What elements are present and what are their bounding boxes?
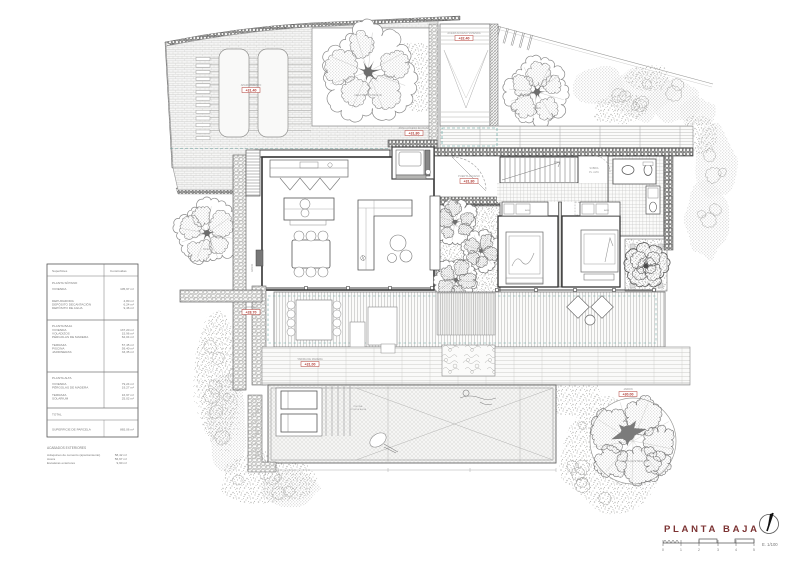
svg-text:+31.80: +31.80	[463, 180, 474, 184]
svg-text:SUPERFICIE DE PARCELA: SUPERFICIE DE PARCELA	[52, 428, 92, 432]
svg-text:TARIMA DE MADERA: TARIMA DE MADERA	[297, 357, 323, 361]
svg-text:62,04 m²: 62,04 m²	[122, 335, 134, 339]
svg-text:Superficies: Superficies	[52, 269, 68, 273]
svg-text:9,46 m²: 9,46 m²	[124, 306, 135, 310]
svg-text:PUERTA ACCESO: PUERTA ACCESO	[458, 174, 480, 178]
svg-text:ARM: ARM	[525, 209, 530, 212]
svg-text:OLEA: OLEA	[533, 106, 541, 110]
svg-text:19,27 m²: 19,27 m²	[122, 386, 134, 390]
svg-text:+30.00: +30.00	[622, 393, 633, 397]
svg-text:SUBIDA: SUBIDA	[590, 167, 599, 170]
svg-text:5: 5	[753, 548, 755, 552]
svg-text:PLANTA SÓTANO: PLANTA SÓTANO	[52, 280, 78, 285]
svg-text:Escaleras exteriores: Escaleras exteriores	[47, 461, 75, 465]
svg-text:0: 0	[662, 548, 664, 552]
svg-text:+31.40: +31.40	[245, 89, 256, 93]
svg-text:9,90 m²: 9,90 m²	[117, 461, 128, 465]
svg-text:CELTIS AUSTRALIS: CELTIS AUSTRALIS	[354, 93, 382, 97]
svg-text:ACERA ACCESO VIVIENDA: ACERA ACCESO VIVIENDA	[447, 31, 480, 35]
svg-text:PLANTA BAJA: PLANTA BAJA	[664, 524, 760, 535]
svg-text:PÉRGOLAS DE MADERA: PÉRGOLAS DE MADERA	[52, 385, 89, 390]
svg-text:2: 2	[698, 548, 700, 552]
svg-text:+32.40: +32.40	[458, 37, 469, 41]
svg-text:ARM: ARM	[604, 209, 609, 212]
svg-text:25,02 m²: 25,02 m²	[122, 397, 134, 401]
svg-text:PLANTA ALTA: PLANTA ALTA	[52, 376, 73, 380]
svg-text:ACCESO: ACCESO	[246, 305, 257, 309]
svg-text:Construidas: Construidas	[110, 269, 127, 273]
svg-text:ACABADOS EXTERIORES: ACABADOS EXTERIORES	[47, 446, 86, 450]
svg-text:RAMPA: RAMPA	[251, 263, 254, 272]
svg-text:+31.00: +31.00	[304, 363, 315, 367]
svg-text:3: 3	[717, 548, 719, 552]
svg-text:APARCAMIENTO: APARCAMIENTO	[241, 83, 262, 87]
svg-text:865,06 m²: 865,06 m²	[120, 428, 134, 432]
svg-text:+28.70: +28.70	[245, 311, 256, 315]
svg-text:CELTIS AUSTRALIS: CELTIS AUSTRALIS	[619, 459, 647, 463]
svg-text:TOTAL: TOTAL	[52, 413, 62, 417]
svg-text:ZONA ACCESO EN RASA: ZONA ACCESO EN RASA	[399, 126, 430, 130]
svg-text:COTA DE AGUA: COTA DE AGUA	[350, 408, 367, 411]
svg-text:PL. ALTA: PL. ALTA	[589, 171, 599, 174]
svg-text:PISCINA: PISCINA	[354, 405, 363, 408]
svg-text:33,35 m²: 33,35 m²	[122, 350, 134, 354]
svg-text:105,97 m²: 105,97 m²	[120, 287, 134, 291]
svg-text:+31.80: +31.80	[408, 132, 419, 136]
svg-text:E. 1/100: E. 1/100	[762, 542, 778, 547]
svg-text:PÉRGOLAS DE MADERA: PÉRGOLAS DE MADERA	[52, 334, 89, 339]
svg-text:JARDINERAS: JARDINERAS	[52, 350, 72, 354]
svg-text:JARDIN: JARDIN	[623, 387, 632, 391]
svg-text:4: 4	[735, 548, 737, 552]
svg-text:1: 1	[680, 548, 682, 552]
svg-text:SOLARIUM: SOLARIUM	[52, 397, 69, 401]
svg-text:OLEA: OLEA	[203, 247, 211, 251]
svg-text:VIVIENDA: VIVIENDA	[52, 287, 67, 291]
svg-text:DEPÓSITO DE AGUA: DEPÓSITO DE AGUA	[52, 305, 83, 310]
